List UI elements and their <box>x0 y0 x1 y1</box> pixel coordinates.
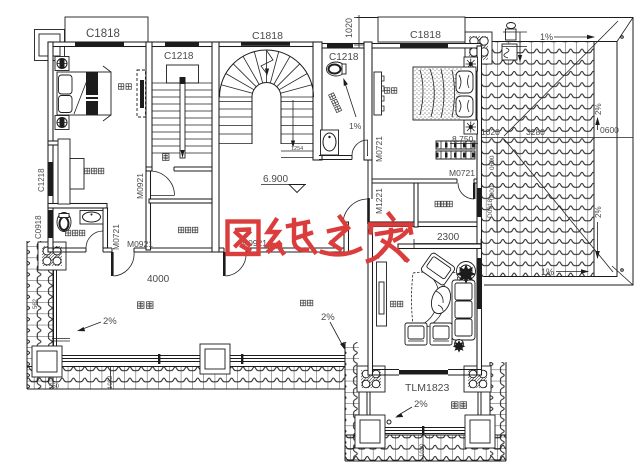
svg-text:0900: 0900 <box>489 185 496 200</box>
svg-text:M0921: M0921 <box>135 173 145 199</box>
svg-text:M0921: M0921 <box>127 239 153 249</box>
svg-text:2300: 2300 <box>437 232 460 243</box>
svg-text:1%: 1% <box>541 267 554 277</box>
svg-text:C1218: C1218 <box>329 52 359 63</box>
svg-text:2%: 2% <box>103 316 117 327</box>
svg-text:2%: 2% <box>414 399 428 410</box>
svg-text:8.750: 8.750 <box>452 134 474 144</box>
svg-text:2%: 2% <box>594 206 603 218</box>
svg-text:M0721: M0721 <box>111 224 121 250</box>
svg-text:550: 550 <box>49 384 60 390</box>
svg-text:1020: 1020 <box>481 127 500 137</box>
svg-text:0600: 0600 <box>489 155 496 170</box>
svg-text:6.900: 6.900 <box>263 174 288 185</box>
svg-text:2%: 2% <box>321 312 335 323</box>
svg-text:1022: 1022 <box>108 375 114 389</box>
svg-text:3280: 3280 <box>526 127 545 137</box>
svg-text:562: 562 <box>33 298 39 309</box>
svg-text:C1818: C1818 <box>410 29 441 41</box>
svg-text:2%: 2% <box>594 103 603 115</box>
svg-text:C1218: C1218 <box>164 51 194 62</box>
svg-text:1020: 1020 <box>420 443 426 457</box>
svg-text:C0918: C0918 <box>34 215 43 239</box>
svg-text:M1221: M1221 <box>374 188 384 214</box>
svg-text:C1218: C1218 <box>37 168 46 192</box>
svg-text:1%: 1% <box>540 32 553 42</box>
svg-text:C1818: C1818 <box>86 28 120 40</box>
svg-text:1254: 1254 <box>291 146 303 152</box>
svg-text:M0721: M0721 <box>449 168 475 178</box>
svg-text:1020: 1020 <box>344 18 354 38</box>
svg-text:C1818: C1818 <box>252 30 283 42</box>
svg-text:0600: 0600 <box>600 125 619 135</box>
svg-text:4000: 4000 <box>147 274 170 285</box>
svg-text:M0721: M0721 <box>374 136 384 162</box>
svg-text:D0918: D0918 <box>487 198 494 218</box>
svg-text:1%: 1% <box>349 121 362 131</box>
svg-text:TLM1823: TLM1823 <box>405 382 450 394</box>
